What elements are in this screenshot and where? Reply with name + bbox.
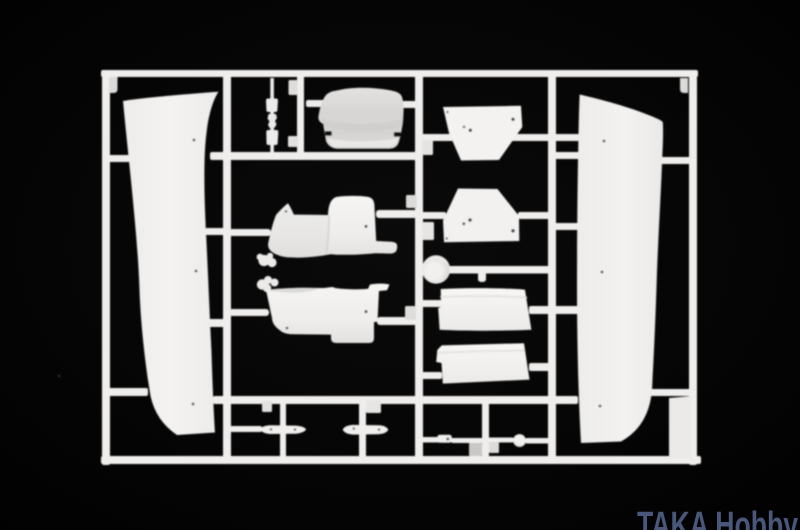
svg-text:TAKA Hobby: TAKA Hobby — [637, 505, 798, 530]
